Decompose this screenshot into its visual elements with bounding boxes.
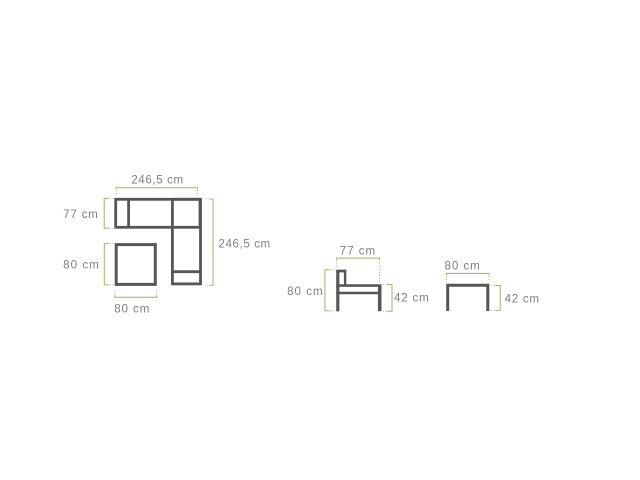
svg-text:80 cm: 80 cm — [444, 260, 479, 273]
svg-text:80 cm: 80 cm — [63, 259, 99, 272]
svg-text:246,5 cm: 246,5 cm — [219, 237, 271, 250]
svg-text:77 cm: 77 cm — [340, 245, 375, 258]
svg-text:42 cm: 42 cm — [505, 293, 539, 306]
svg-text:80 cm: 80 cm — [287, 285, 323, 298]
svg-text:80 cm: 80 cm — [114, 302, 149, 315]
svg-text:77 cm: 77 cm — [63, 208, 98, 221]
svg-text:42 cm: 42 cm — [394, 291, 429, 304]
svg-text:246,5 cm: 246,5 cm — [131, 174, 183, 187]
